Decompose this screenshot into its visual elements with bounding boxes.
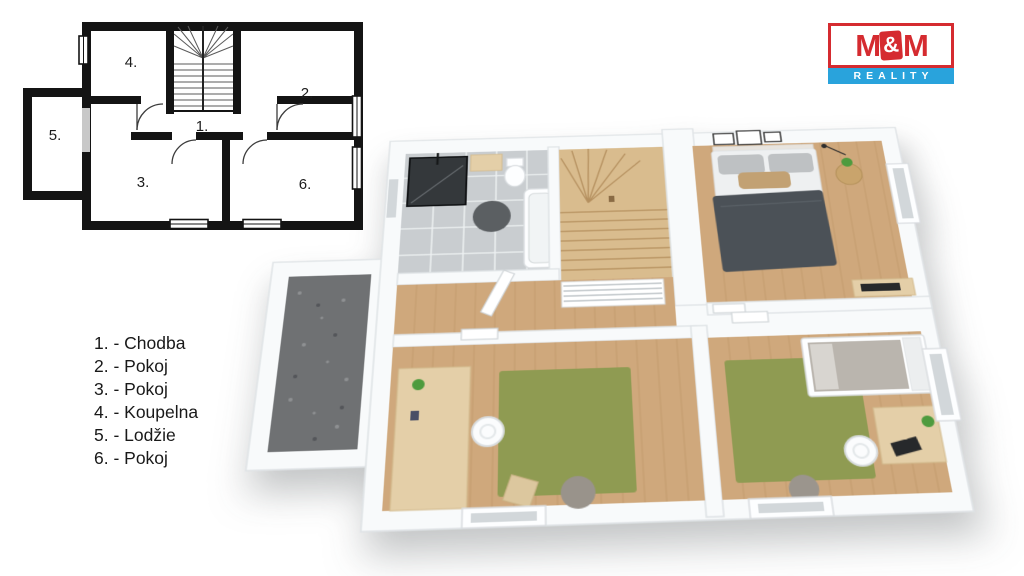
room3-door: [461, 328, 498, 340]
bedroom-door: [713, 304, 746, 314]
logo-m-left: M: [855, 30, 879, 61]
desk-left: [390, 367, 471, 511]
single-bed: [801, 335, 935, 397]
logo-mm-box: M & M: [828, 23, 954, 68]
floorplan-3d-wrap: [229, 121, 999, 563]
bedroom-dresser: [852, 278, 916, 297]
real-estate-floorplan-page: 4. 2. 5. 1. 3. 6. 1. - Chodba 2. - Pokoj…: [0, 0, 1024, 576]
stair-newel: [609, 196, 615, 202]
label-room-3: 3.: [137, 174, 150, 191]
legend-item-chodba: 1. - Chodba: [94, 332, 198, 355]
window-bottom-left: [462, 506, 546, 529]
floorplan-2d-labels: 4. 2. 5. 1. 3. 6.: [49, 54, 314, 193]
toilet: [505, 158, 526, 187]
legend-item-pokoj-3: 3. - Pokoj: [94, 378, 198, 401]
logo-ampersand: &: [879, 30, 903, 60]
legend-item-koupelna: 4. - Koupelna: [94, 401, 198, 424]
window-bottom-right: [749, 496, 834, 518]
logo-m-right: M: [903, 30, 927, 61]
bathroom-vanity: [470, 154, 502, 171]
label-room-1: 1.: [196, 118, 209, 135]
accent-pillow: [737, 171, 791, 189]
logo-reality-bar: REALITY: [828, 68, 954, 84]
loggia-window: [82, 108, 90, 152]
bedroom-top: [691, 127, 916, 305]
room-legend: 1. - Chodba 2. - Pokoj 3. - Pokoj 4. - K…: [94, 332, 198, 470]
label-room-5: 5.: [49, 127, 62, 144]
shower-fixture: [437, 153, 438, 165]
radiator: [561, 279, 665, 307]
staircase: [559, 147, 675, 281]
label-room-2: 2.: [301, 85, 314, 102]
door-symbols: [137, 104, 303, 164]
legend-item-pokoj-6: 6. - Pokoj: [94, 447, 198, 470]
legend-item-lodzie: 5. - Lodžie: [94, 424, 198, 447]
mm-reality-logo: M & M REALITY: [828, 23, 954, 84]
bathroom: [398, 150, 559, 274]
room-bottom-left: [382, 338, 706, 515]
stairs-symbol: [174, 26, 233, 110]
room-bottom-right: [708, 331, 956, 506]
tv: [860, 283, 901, 292]
floorplan-3d: [229, 121, 999, 563]
legend-item-pokoj-2: 2. - Pokoj: [94, 355, 198, 378]
desk-chair-left: [472, 417, 504, 447]
room6-door: [732, 311, 769, 322]
label-room-4: 4.: [125, 54, 138, 71]
